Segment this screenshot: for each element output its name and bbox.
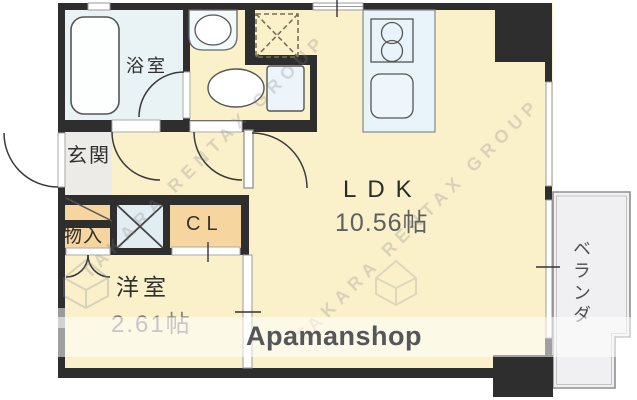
kitchen-sink-icon [371,74,413,118]
bathroom-doorway [183,72,190,118]
ldk-label: LDK [343,178,423,202]
veranda-label: ベランダ [572,239,590,327]
corner-block-top-right [495,10,552,62]
ldk-door-leaf [244,130,253,188]
storage-label: 物入 [63,227,103,246]
window-top-small [88,3,110,10]
entrance-door-arc [4,133,58,187]
closet-label: CL [186,214,224,234]
corner-block-bottom-right [493,355,553,397]
entrance-label: 玄関 [67,146,111,166]
kitchen-unit [363,10,435,132]
closet-doorway [172,247,240,255]
bathtub-icon [71,17,119,114]
balcony-window-upper [546,82,552,186]
western-room-label: 洋室 [116,276,170,299]
brand-logo-text: Apamanshop [246,321,422,352]
bathroom-label: 浴室 [126,57,168,75]
veranda-outline [553,192,630,388]
entrance-doorway [58,133,65,187]
floor-plan: 浴室 玄関 物入 CL 洋室 2.61帖 LDK 10.56帖 ベランダ TAK… [0,0,637,400]
washbasin-icon [189,10,237,50]
hall-doorway-left [112,120,160,132]
